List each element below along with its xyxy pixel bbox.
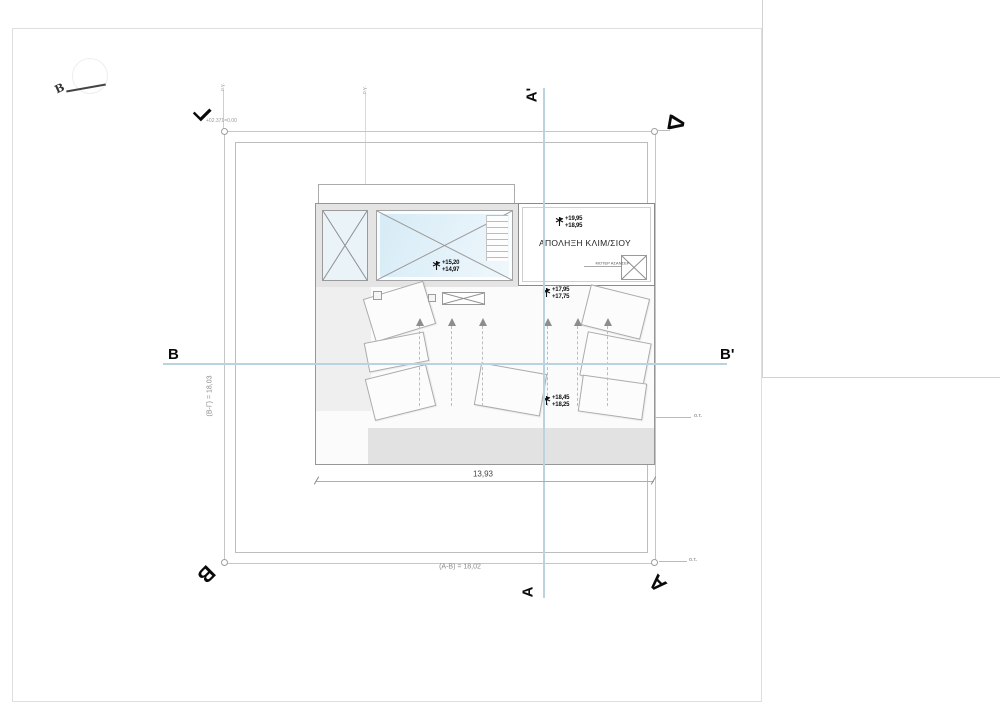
section-label-a-bottom: Α xyxy=(520,587,537,598)
corner-dot-beta xyxy=(221,559,228,566)
vent-box xyxy=(442,292,485,305)
dim-bottom-label: (Α-Β) = 18,02 xyxy=(439,564,481,571)
section-label-b-left: Β xyxy=(168,346,179,363)
benchmark-note: +02.371=0.00 xyxy=(206,118,237,124)
ot-line-bottom xyxy=(659,561,687,562)
level-marker-pool: +15,20+14,97 xyxy=(432,260,459,273)
drawing-canvas: B ο.γ. ο.γ. +02.371=0.00 Γ Δ Β Α +15,20+… xyxy=(0,0,1000,724)
motor-label: ΜΟΤΕΡ ΑΣΑΝΣΕΡ xyxy=(596,261,619,266)
dim-inner-label: 13,93 xyxy=(473,470,493,479)
ot-line-right xyxy=(655,417,691,418)
corner-dot-delta xyxy=(651,128,658,135)
flow-arrow xyxy=(604,318,612,406)
section-line-b xyxy=(163,363,727,365)
side-panel xyxy=(762,0,1000,378)
section-label-a-top: Α' xyxy=(524,88,541,102)
flow-arrow xyxy=(479,318,487,406)
og-label-2: ο.γ. xyxy=(362,86,368,94)
section-line-a xyxy=(543,88,545,598)
roof-zone-left xyxy=(316,287,371,411)
support-block xyxy=(373,291,382,300)
support-block xyxy=(428,294,436,302)
benchmark-icon xyxy=(555,216,564,227)
section-label-b-right: Β' xyxy=(720,346,734,363)
parapet-strip xyxy=(318,184,515,204)
flow-arrow xyxy=(544,318,552,406)
flow-arrow xyxy=(574,318,582,406)
level-marker-roof-upper: +17,95+17,75 xyxy=(542,287,569,300)
boundary-extension-line xyxy=(223,90,224,132)
flow-arrow xyxy=(448,318,456,406)
pool-stairs xyxy=(486,215,508,261)
level-marker-bulkhead: +19,95+18,95 xyxy=(555,216,582,229)
dimension-line-inner xyxy=(316,481,654,482)
corner-dot-gamma xyxy=(221,128,228,135)
elevator-motor-box xyxy=(621,255,647,280)
flow-arrow xyxy=(416,318,424,406)
corner-dot-alpha xyxy=(651,559,658,566)
skylight-box xyxy=(322,210,368,281)
benchmark-icon xyxy=(432,260,441,271)
level-marker-roof-lower: +18,45+18,25 xyxy=(542,395,569,408)
og-label-1: ο.γ. xyxy=(220,83,226,91)
ot-label-bottom: ο.τ. xyxy=(689,557,697,563)
dim-left-label: (Β-Γ) = 18,03 xyxy=(207,375,214,416)
room-label: ΑΠΟΛΗΞΗ ΚΛΙΜ/ΣΙΟΥ xyxy=(539,238,631,248)
motor-leader-line xyxy=(584,266,621,267)
ot-label-right: ο.τ. xyxy=(694,413,702,419)
roof-zone-bottom xyxy=(368,428,654,464)
